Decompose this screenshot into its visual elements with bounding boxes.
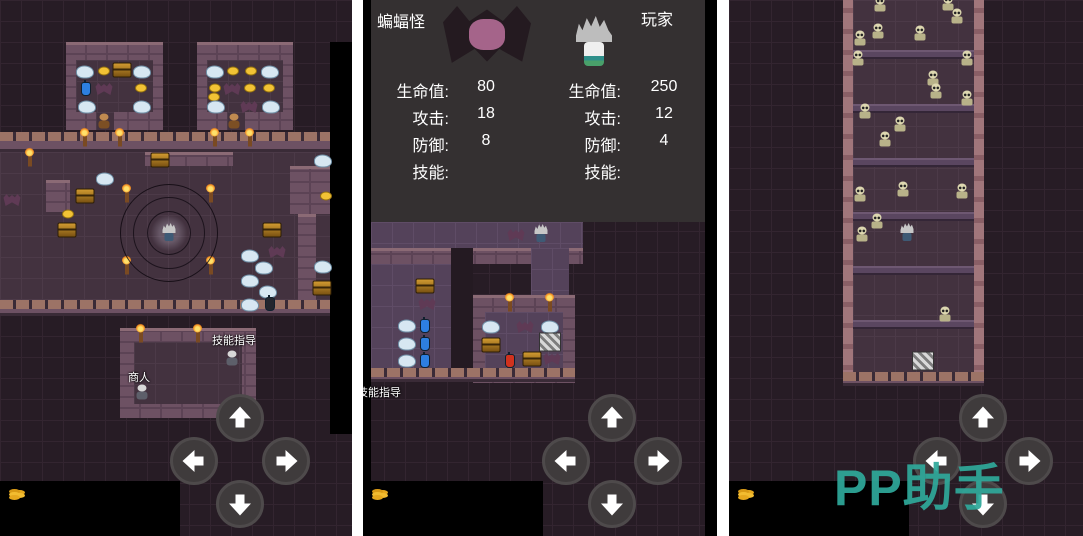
rat-sprite bbox=[241, 299, 259, 312]
potion-blue-sprite bbox=[420, 319, 430, 333]
rat-sprite bbox=[133, 101, 151, 114]
coin-sprite bbox=[263, 84, 275, 93]
player-name: 玩家 bbox=[641, 6, 673, 30]
torch-sprite bbox=[248, 136, 252, 147]
skel-sprite bbox=[961, 51, 974, 66]
dpad-2 bbox=[542, 394, 682, 528]
map-band bbox=[0, 300, 330, 316]
coin-sprite bbox=[320, 192, 332, 201]
coin-sprite bbox=[135, 84, 147, 93]
map-shelf bbox=[853, 320, 974, 329]
map-floor-lt bbox=[371, 264, 451, 368]
skel-sprite bbox=[859, 104, 872, 119]
player-sprite bbox=[162, 223, 177, 241]
enemy-hp-label: 生命值: bbox=[371, 78, 449, 102]
dpad-left-button[interactable] bbox=[542, 437, 590, 485]
enemy-skill-label: 技能: bbox=[371, 159, 449, 183]
chest-sprite bbox=[58, 223, 77, 238]
torch-sprite bbox=[28, 156, 32, 167]
down-arrow-icon bbox=[600, 493, 624, 516]
stat-row-skill: 技能: 技能: bbox=[371, 159, 705, 179]
stat-row-def: 防御: 8 防御: 4 bbox=[371, 132, 705, 152]
torch-sprite bbox=[139, 332, 143, 343]
rat-sprite bbox=[133, 66, 151, 79]
torch-sprite bbox=[213, 136, 217, 147]
up-arrow-icon bbox=[600, 407, 624, 430]
stats-hud-2: : 25 hp: 250 经验: 10 攻击: 12 防御: 4 bbox=[363, 481, 543, 536]
player-atk-label: 攻击: bbox=[539, 105, 621, 129]
map-band bbox=[371, 368, 575, 382]
torch-sprite bbox=[118, 136, 122, 147]
rat-sprite bbox=[482, 321, 500, 334]
left-arrow-icon bbox=[183, 449, 206, 473]
left-arrow-icon bbox=[555, 449, 578, 473]
up-arrow-icon bbox=[971, 407, 995, 430]
potion-blue-sprite bbox=[420, 354, 430, 368]
torch-sprite bbox=[125, 264, 129, 275]
potion-red-sprite bbox=[505, 354, 515, 368]
chest-sprite bbox=[416, 279, 435, 294]
right-arrow-icon bbox=[1018, 449, 1041, 473]
game-screen-1: 技能指导商人 : 20 hp: 250 经验: 10 攻击: 12 防御: 4 bbox=[0, 0, 352, 536]
rat-sprite bbox=[255, 262, 273, 275]
enemy-atk-label: 攻击: bbox=[371, 105, 449, 129]
rat-sprite bbox=[314, 261, 332, 274]
stats-hud-1: : 20 hp: 250 经验: 10 攻击: 12 防御: 4 bbox=[0, 481, 180, 536]
coin-sprite bbox=[227, 67, 239, 76]
down-arrow-icon bbox=[228, 493, 252, 516]
enemy-hp-value: 80 bbox=[457, 78, 515, 96]
rat-sprite bbox=[96, 173, 114, 186]
torch-sprite bbox=[209, 264, 213, 275]
skel-sprite bbox=[894, 117, 907, 132]
dpad-up-button[interactable] bbox=[216, 394, 264, 442]
chest-sprite bbox=[76, 189, 95, 204]
gold-coin-icon bbox=[9, 488, 25, 500]
torch-sprite bbox=[508, 301, 512, 312]
rat-sprite bbox=[241, 275, 259, 288]
map-shelf bbox=[853, 158, 974, 167]
coin-sprite bbox=[244, 84, 256, 93]
rat-sprite bbox=[262, 101, 280, 114]
skel-sprite bbox=[939, 307, 952, 322]
torch-sprite bbox=[209, 192, 213, 203]
npc-gray-sprite bbox=[226, 351, 239, 366]
map-floor-lt bbox=[371, 222, 583, 248]
map-dark bbox=[451, 248, 473, 368]
torch-sprite bbox=[125, 192, 129, 203]
rat-sprite bbox=[207, 101, 225, 114]
stat-row-hp: 生命值: 80 生命值: 250 bbox=[371, 78, 705, 98]
player-atk-value: 12 bbox=[633, 105, 695, 123]
enemy-atk-value: 18 bbox=[457, 105, 515, 123]
skel-sprite bbox=[852, 51, 865, 66]
player-skill-label: 技能: bbox=[539, 159, 621, 183]
gold-coin-icon bbox=[738, 488, 754, 500]
player-def-value: 4 bbox=[633, 132, 695, 150]
dpad-left-button[interactable] bbox=[170, 437, 218, 485]
enemy-def-value: 8 bbox=[457, 132, 515, 150]
chest-sprite bbox=[263, 223, 282, 238]
chest-sprite bbox=[482, 338, 501, 353]
coin-sprite bbox=[98, 67, 110, 76]
rat-sprite bbox=[206, 66, 224, 79]
skel-sprite bbox=[854, 31, 867, 46]
coin-sprite bbox=[209, 84, 221, 93]
player-hp-label: 生命值: bbox=[539, 78, 621, 102]
player-sprite bbox=[573, 16, 615, 72]
rat-sprite bbox=[261, 66, 279, 79]
skel-sprite bbox=[879, 132, 892, 147]
rat-sprite bbox=[76, 66, 94, 79]
skel-sprite bbox=[871, 214, 884, 229]
map-label: 技能指导 bbox=[212, 332, 256, 348]
dpad-right-button[interactable] bbox=[1005, 437, 1053, 485]
enemy-def-label: 防御: bbox=[371, 132, 449, 156]
skel-sprite bbox=[872, 24, 885, 39]
game-screen-2: 技能指导 蝙蝠怪 玩家 生命值: 80 生命值: 250 攻击: 18 攻击: … bbox=[363, 0, 717, 536]
screenshot-strip: 技能指导商人 : 20 hp: 250 经验: 10 攻击: 12 防御: 4 … bbox=[0, 0, 1083, 536]
potion-blue-sprite bbox=[81, 82, 91, 96]
npc-brown-sprite bbox=[228, 114, 241, 129]
skel-sprite bbox=[961, 91, 974, 106]
map-black bbox=[363, 0, 371, 536]
chest-sprite bbox=[523, 352, 542, 367]
rat-sprite bbox=[241, 250, 259, 263]
dpad-up-button[interactable] bbox=[588, 394, 636, 442]
chest-sprite bbox=[151, 153, 170, 168]
map-band bbox=[0, 132, 330, 152]
dpad-down-button[interactable] bbox=[216, 480, 264, 528]
map-band bbox=[843, 372, 984, 386]
torch-sprite bbox=[83, 136, 87, 147]
rat-sprite bbox=[398, 338, 416, 351]
skel-sprite bbox=[854, 187, 867, 202]
rat-sprite bbox=[398, 320, 416, 333]
player-hp-value: 250 bbox=[633, 78, 695, 96]
enemy-name: 蝙蝠怪 bbox=[377, 8, 425, 32]
stairs-sprite bbox=[912, 352, 934, 371]
dpad-down-button[interactable] bbox=[588, 480, 636, 528]
right-arrow-icon bbox=[275, 449, 298, 473]
dpad-right-button[interactable] bbox=[634, 437, 682, 485]
map-label: 技能指导 bbox=[363, 384, 401, 400]
torch-sprite bbox=[548, 301, 552, 312]
skel-sprite bbox=[897, 182, 910, 197]
npc-gray-sprite bbox=[136, 385, 149, 400]
skel-sprite bbox=[956, 184, 969, 199]
stat-row-atk: 攻击: 18 攻击: 12 bbox=[371, 105, 705, 125]
potion-dark-sprite bbox=[265, 297, 275, 311]
coin-sprite bbox=[62, 210, 74, 219]
chest-sprite bbox=[113, 63, 132, 78]
map-shelf bbox=[853, 266, 974, 275]
dpad-right-button[interactable] bbox=[262, 437, 310, 485]
skel-sprite bbox=[874, 0, 887, 12]
dpad-up-button[interactable] bbox=[959, 394, 1007, 442]
skel-sprite bbox=[856, 227, 869, 242]
battle-status-panel: 蝙蝠怪 玩家 生命值: 80 生命值: 250 攻击: 18 攻击: 12 防御… bbox=[371, 0, 705, 222]
map-label: 商人 bbox=[128, 369, 150, 385]
map-black bbox=[705, 0, 717, 536]
player-sprite bbox=[534, 224, 549, 242]
stairs-sprite bbox=[539, 333, 561, 352]
skel-sprite bbox=[930, 84, 943, 99]
rat-sprite bbox=[398, 355, 416, 368]
npc-brown-sprite bbox=[98, 114, 111, 129]
up-arrow-icon bbox=[228, 407, 252, 430]
pp-assistant-watermark: PP助手 bbox=[834, 448, 1005, 520]
player-sprite bbox=[900, 223, 915, 241]
map-wall bbox=[46, 180, 70, 212]
map-wall-sal bbox=[974, 0, 984, 386]
rat-sprite bbox=[314, 155, 332, 168]
dpad-1 bbox=[170, 394, 310, 528]
coin-sprite bbox=[245, 67, 257, 76]
map-shelf bbox=[853, 50, 974, 59]
skel-sprite bbox=[951, 9, 964, 24]
player-def-label: 防御: bbox=[539, 132, 621, 156]
torch-sprite bbox=[196, 332, 200, 343]
rat-sprite bbox=[78, 101, 96, 114]
right-arrow-icon bbox=[647, 449, 670, 473]
map-black bbox=[330, 42, 352, 434]
map-floor-lt bbox=[531, 248, 569, 296]
potion-blue-sprite bbox=[420, 337, 430, 351]
skel-sprite bbox=[914, 26, 927, 41]
map-wall bbox=[290, 166, 330, 214]
bat-monster-sprite bbox=[443, 6, 531, 64]
chest-sprite bbox=[313, 281, 332, 296]
gold-coin-icon bbox=[372, 488, 388, 500]
